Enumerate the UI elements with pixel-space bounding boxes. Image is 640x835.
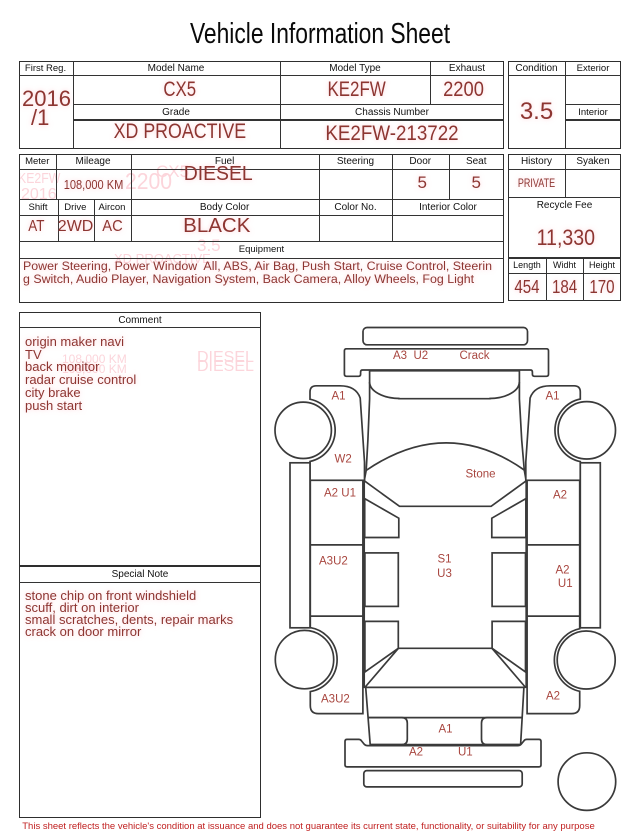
svg-text:Stone: Stone — [466, 469, 496, 481]
svg-text:A3U2: A3U2 — [321, 694, 350, 706]
svg-text:A2: A2 — [556, 565, 570, 577]
svg-text:A1: A1 — [332, 391, 346, 403]
svg-text:A2: A2 — [546, 691, 560, 703]
svg-text:A2 U1: A2 U1 — [324, 488, 356, 500]
svg-text:U3: U3 — [437, 568, 452, 580]
svg-text:A1: A1 — [439, 724, 453, 736]
svg-text:U1: U1 — [458, 747, 473, 759]
svg-text:Crack: Crack — [460, 350, 490, 362]
svg-text:S1: S1 — [437, 554, 451, 566]
svg-text:A3U2: A3U2 — [319, 556, 348, 568]
svg-text:A3 U2: A3 U2 — [393, 350, 428, 362]
svg-text:A2: A2 — [553, 490, 567, 502]
svg-text:U1: U1 — [558, 578, 573, 590]
svg-text:A2: A2 — [409, 747, 423, 759]
svg-text:A1: A1 — [546, 391, 560, 403]
svg-text:W2: W2 — [335, 454, 352, 466]
